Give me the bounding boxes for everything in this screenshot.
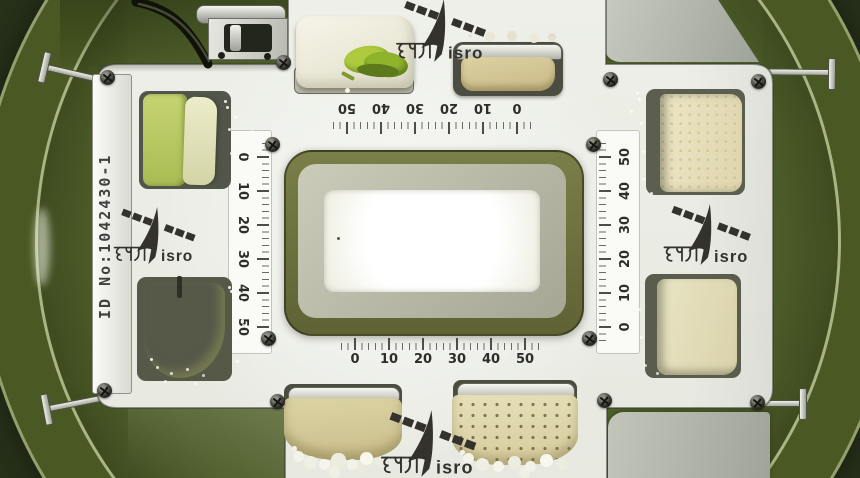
isro-logo-latin: isro	[448, 44, 483, 63]
clamp-foot-left	[218, 52, 225, 59]
ruler-ticks	[599, 140, 606, 344]
condensation-froth-bottom-left	[292, 446, 297, 451]
isro-logo-latin: isro	[714, 248, 748, 266]
specimen-right-upper-pod	[660, 94, 742, 192]
ruler-label: 30	[225, 248, 259, 270]
ruler-label: 0	[609, 316, 643, 338]
screw	[597, 393, 612, 408]
seed-beads	[345, 88, 350, 93]
isro-logo-left: इसरो isro	[112, 206, 210, 266]
screw	[100, 70, 115, 85]
ruler-bottom: 0 10 20 30 40 50	[338, 334, 542, 374]
ruler-right: 50 40 30 20 10 0	[596, 130, 640, 354]
screw	[265, 137, 280, 152]
scene-alt-text: Top view of an ISRO CROPS seed-germinati…	[0, 0, 1, 1]
screw	[270, 394, 285, 409]
chamber-rim-glare	[34, 208, 50, 286]
ruler-label: 30	[440, 352, 474, 367]
ruler-label: 20	[609, 248, 643, 270]
ruler-label: 40	[364, 100, 398, 115]
isro-logo-top: इसरो isro	[394, 0, 502, 64]
ruler-label: 20	[406, 352, 440, 367]
ruler-label: 50	[508, 352, 542, 367]
underplate-wedge-bottom-right	[608, 412, 770, 478]
ruler-top: 50 40 30 20 10 0	[330, 100, 534, 140]
ruler-label: 10	[609, 282, 643, 304]
isro-logo-bottom: इसरो isro	[378, 409, 494, 478]
ruler-label: 0	[500, 100, 534, 115]
condensation-droplets	[636, 92, 639, 95]
window-center	[324, 190, 540, 292]
specimen-left-upper-pale	[182, 96, 217, 185]
ruler-label: 40	[474, 352, 508, 367]
screw	[582, 331, 597, 346]
ruler-label: 40	[609, 180, 643, 202]
screw	[586, 137, 601, 152]
condensation-droplets	[228, 286, 231, 289]
screw	[603, 72, 618, 87]
ruler-label: 10	[466, 100, 500, 115]
screw	[97, 383, 112, 398]
ruler-ticks	[262, 140, 269, 344]
screw	[276, 55, 291, 70]
ruler-label: 30	[609, 214, 643, 236]
isro-logo-right: इसरो isro	[662, 203, 766, 267]
screw	[751, 74, 766, 89]
isro-logo-latin: isro	[436, 457, 474, 477]
ruler-left: 0 10 20 30 40 50	[228, 130, 272, 354]
condensation-droplets	[150, 358, 153, 361]
ruler-label: 20	[225, 214, 259, 236]
screw	[261, 331, 276, 346]
ruler-ticks	[330, 122, 534, 129]
condensation-droplets	[634, 280, 637, 283]
specimen-left-upper-green	[143, 94, 187, 186]
isro-logo-latin: isro	[161, 248, 193, 265]
screw	[750, 395, 765, 410]
chamber-shading-bottom-left	[128, 406, 288, 478]
ruler-label: 0	[338, 352, 372, 367]
window-speck	[337, 237, 340, 240]
ruler-label: 30	[398, 100, 432, 115]
clamp-slot-pin-highlight	[230, 25, 241, 51]
ruler-ticks	[338, 343, 542, 350]
condensation-droplets	[224, 100, 227, 103]
ruler-label: 50	[609, 146, 643, 168]
specimen-right-lower-pod	[657, 279, 737, 375]
clamp-foot-right	[264, 53, 271, 60]
ruler-label: 10	[372, 352, 406, 367]
ruler-label: 50	[330, 100, 364, 115]
ruler-label: 20	[432, 100, 466, 115]
crops-seed-module-photo: ID No:1042430-1 50 40 30 20 10 0 0 10 20…	[0, 0, 860, 478]
